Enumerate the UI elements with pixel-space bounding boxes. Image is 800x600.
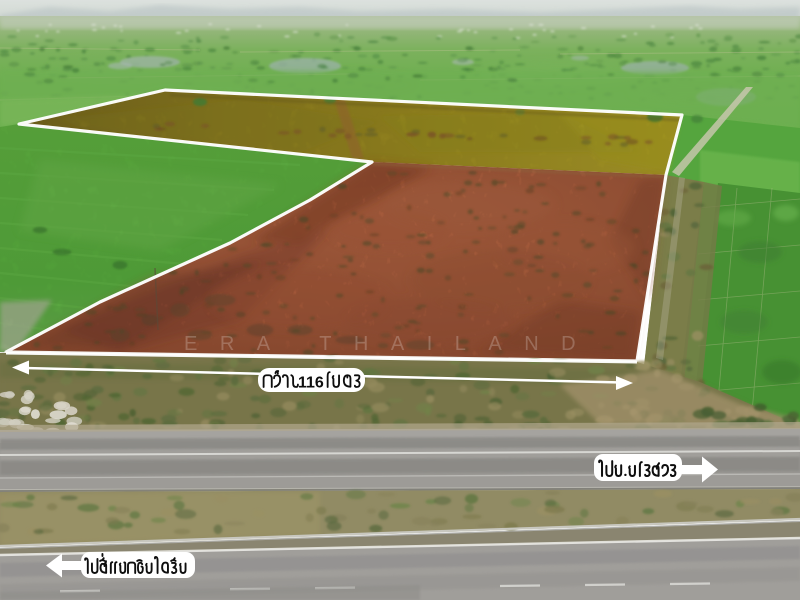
svg-text:116: 116: [298, 375, 324, 392]
svg-text:ERA THAILAND: ERA THAILAND: [184, 333, 598, 355]
